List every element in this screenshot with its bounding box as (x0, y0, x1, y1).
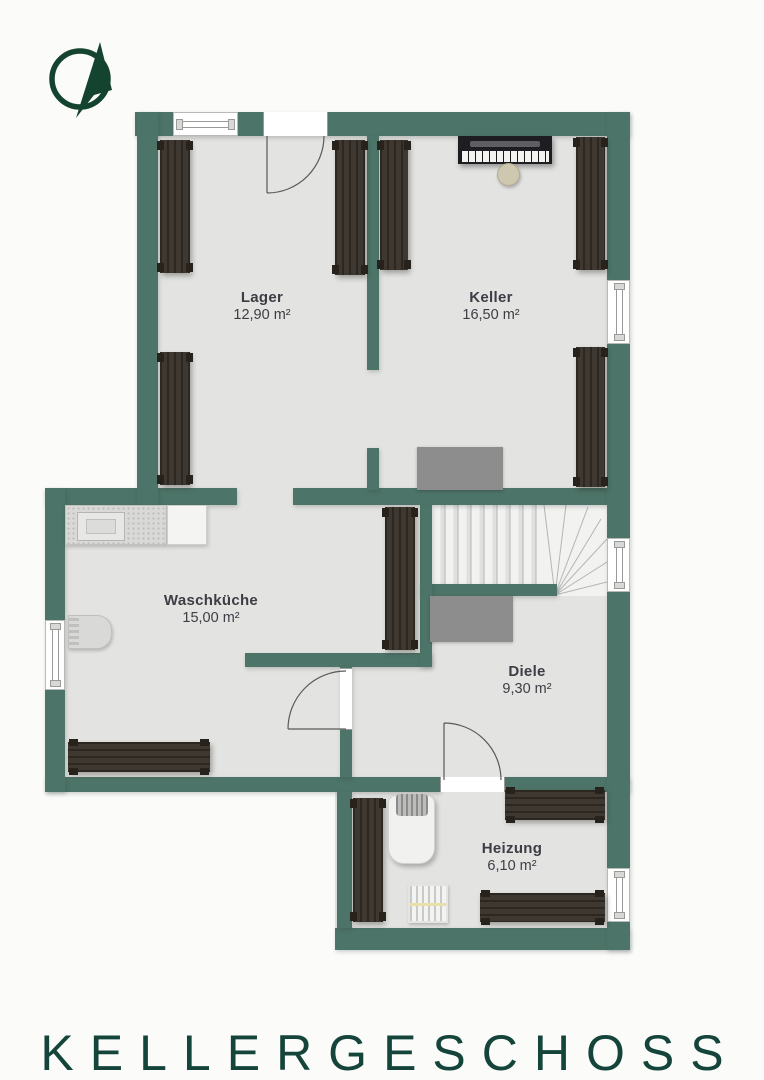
room-area: 6,10 m² (482, 858, 542, 874)
room-name: Heizung (482, 840, 542, 857)
room-area: 15,00 m² (164, 610, 258, 626)
room-area: 9,30 m² (502, 681, 551, 697)
room-label-waschkueche: Waschküche 15,00 m² (164, 592, 258, 626)
room-label-diele: Diele 9,30 m² (502, 663, 551, 697)
room-label-keller: Keller 16,50 m² (462, 289, 519, 323)
room-name: Diele (502, 663, 551, 680)
door-swing-arcs (0, 0, 764, 1080)
room-name: Keller (462, 289, 519, 306)
room-label-heizung: Heizung 6,10 m² (482, 840, 542, 874)
room-name: Lager (233, 289, 290, 306)
room-name: Waschküche (164, 592, 258, 609)
floor-title: KELLERGESCHOSS (0, 1024, 764, 1080)
room-label-lager: Lager 12,90 m² (233, 289, 290, 323)
room-area: 16,50 m² (462, 307, 519, 323)
floorplan-canvas: Lager 12,90 m² Keller 16,50 m² Waschküch… (0, 0, 764, 1080)
room-area: 12,90 m² (233, 307, 290, 323)
